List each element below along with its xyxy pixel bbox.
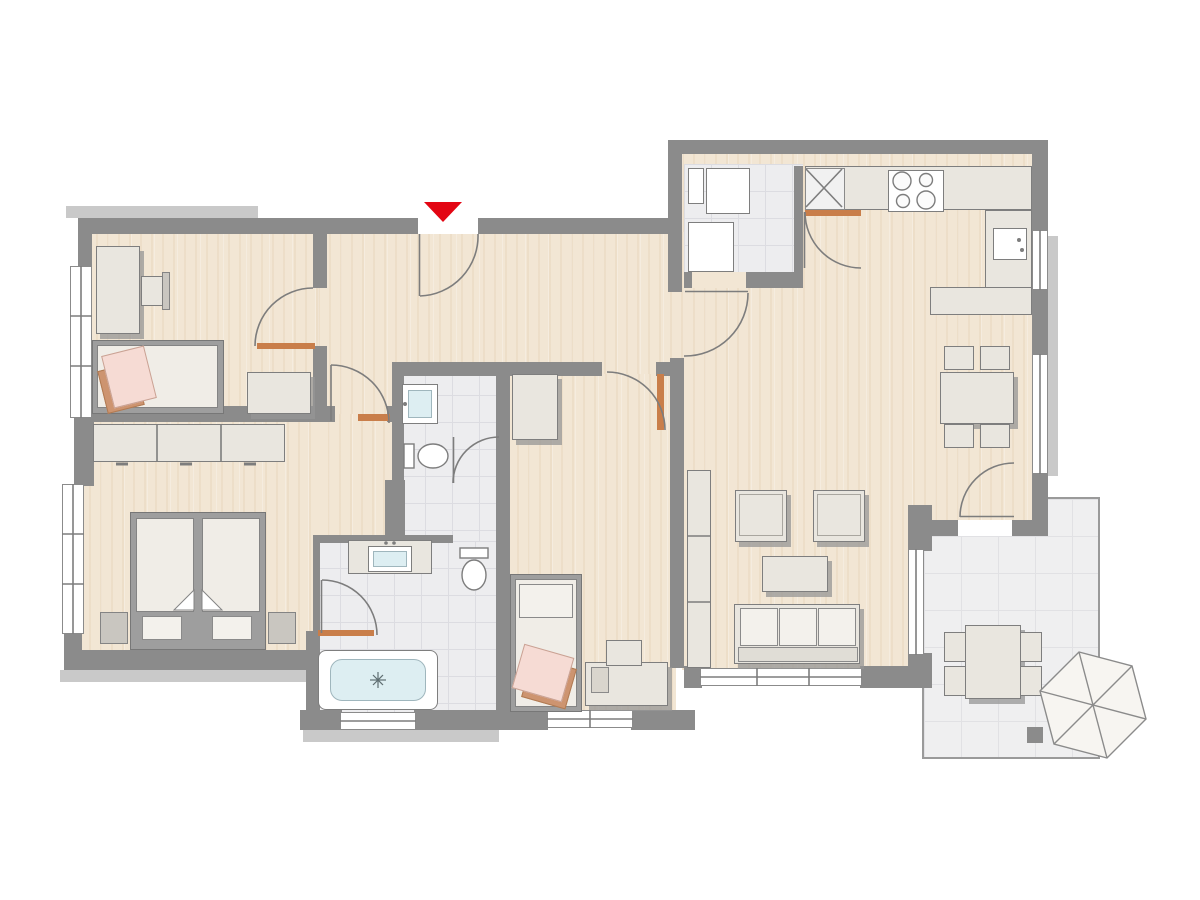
wall-top-left: [78, 218, 418, 234]
terrace-chair-2: [944, 666, 966, 696]
dining-table: [940, 372, 1014, 424]
wardrobe-child: [512, 374, 558, 440]
terrace-door-opening: [958, 520, 1012, 536]
wall-bath-west-thin: [313, 543, 320, 633]
wall-corridor-s1: [327, 406, 335, 422]
exterior-trim-bottom-bath: [303, 730, 499, 742]
door-sill-kitchen: [805, 209, 861, 216]
wall-room1-stub-n: [313, 232, 327, 288]
double-bed-mattress-left: [136, 518, 194, 612]
wall-living-west: [670, 358, 684, 668]
wall-living-east-1: [908, 505, 932, 551]
wall-left-pier: [74, 416, 94, 486]
dining-chair-1: [944, 346, 974, 370]
nightstand-left: [100, 612, 128, 644]
double-bed-mattress-right: [202, 518, 260, 612]
bath-washbasin-bowl: [373, 551, 407, 567]
sofa-cushion-1: [740, 608, 778, 646]
wall-utility-east: [794, 166, 803, 276]
window-living-south: [700, 668, 862, 686]
wall-child-south-2: [631, 710, 695, 730]
sofa-cushion-2: [779, 608, 817, 646]
wall-wc-north: [392, 362, 496, 376]
terrace-chair-1: [944, 632, 966, 662]
desk-item-child: [591, 667, 609, 693]
dining-chair-4: [980, 424, 1010, 448]
wall-bath-north-2: [499, 535, 510, 543]
utility-door-opening: [692, 272, 746, 288]
sofa-cushion-3: [818, 608, 856, 646]
wc-washbasin-bowl: [408, 390, 432, 418]
wall-annex-top: [668, 140, 1046, 154]
wall-child-south-1: [496, 710, 548, 730]
duvet-left: [142, 616, 182, 640]
exterior-trim-top-left: [66, 206, 258, 218]
door-sill-child-room: [657, 374, 664, 430]
duvet-right: [212, 616, 252, 640]
sofa-backrest: [738, 647, 858, 662]
armchair-2-seat: [817, 494, 861, 536]
sideboard-bedroom: [93, 424, 285, 462]
kitchen-sink: [993, 228, 1027, 260]
exterior-trim-bottom-left: [60, 670, 308, 682]
exterior-trim-right: [1048, 236, 1058, 476]
window-bedroom-left: [62, 484, 84, 634]
kitchen-peninsula: [930, 287, 1032, 315]
terrace-table: [965, 625, 1021, 699]
door-sill-room1: [257, 343, 315, 349]
window-dining-right: [1032, 354, 1048, 474]
tall-cabinet-living: [687, 470, 711, 668]
kitchen-corner-unit: [805, 168, 845, 210]
bathtub-water: [330, 659, 426, 701]
window-kitchen-right: [1032, 230, 1048, 290]
wall-bath-south-2: [414, 710, 496, 730]
door-sill-bedroom: [358, 414, 390, 421]
desk-chair-child: [606, 640, 642, 666]
wall-right-1: [1032, 140, 1048, 232]
wall-right-2: [1032, 288, 1048, 356]
pillow-child: [519, 584, 573, 618]
terrace-chair-4: [1020, 666, 1042, 696]
entrance-arrow-marker: [424, 202, 462, 222]
wall-annex-left: [668, 140, 682, 292]
cooktop: [888, 170, 944, 212]
nightstand-right: [268, 612, 296, 644]
desk-chair-room1: [141, 276, 163, 306]
terrace-chair-3: [1020, 632, 1042, 662]
terrace-post: [1027, 727, 1043, 743]
floorplan-canvas: [0, 0, 1200, 900]
wall-room1-stub-s: [313, 346, 327, 408]
window-living-right: [908, 549, 924, 655]
window-room1-left: [70, 266, 92, 418]
wall-left-bottom: [64, 630, 82, 670]
washing-machine-1: [706, 168, 750, 214]
dresser-room1: [247, 372, 311, 414]
window-child-south: [547, 710, 633, 728]
wall-dining-south-2: [1012, 520, 1048, 536]
window-bath-south: [340, 712, 416, 730]
wall-left-top: [78, 218, 92, 270]
wall-living-south-1: [860, 666, 924, 688]
utility-niche: [688, 168, 704, 204]
desk-room1: [96, 246, 140, 334]
coffee-table: [762, 556, 828, 592]
armchair-1-seat: [739, 494, 783, 536]
wall-top-right: [478, 218, 672, 234]
wall-bedroom-south: [66, 650, 310, 670]
door-sill-bathroom: [318, 630, 374, 636]
wall-wc-block: [385, 480, 405, 538]
desk-chair-back-room1: [162, 272, 170, 310]
washing-machine-2: [688, 222, 734, 272]
dining-chair-2: [980, 346, 1010, 370]
wall-utility-south-1: [684, 272, 692, 288]
dining-chair-3: [944, 424, 974, 448]
